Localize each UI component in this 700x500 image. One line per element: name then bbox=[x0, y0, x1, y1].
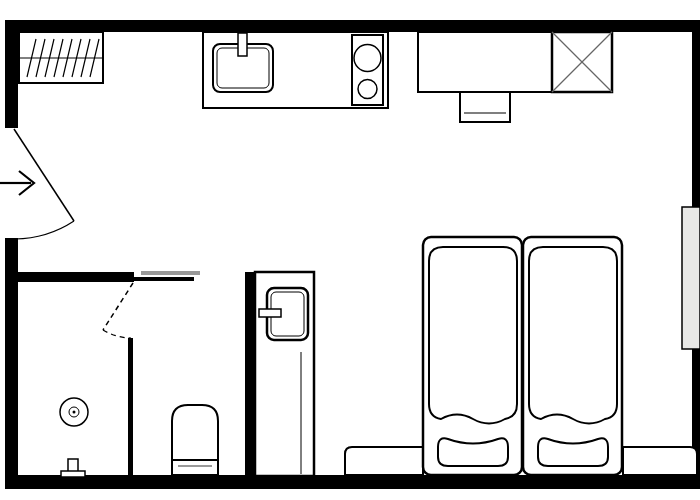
pocket-door-track bbox=[141, 271, 200, 275]
sink-faucet bbox=[238, 33, 247, 56]
desk bbox=[418, 32, 552, 92]
desk-chair bbox=[460, 92, 510, 122]
bench-right-of-beds bbox=[623, 447, 697, 475]
wall-right-upper bbox=[692, 20, 700, 207]
shower-valve-stem bbox=[68, 459, 78, 472]
floor-drain-dot bbox=[73, 411, 76, 414]
shower-valve-base bbox=[61, 471, 85, 477]
wall-bathroom-top bbox=[5, 272, 134, 282]
stove-burner-large bbox=[354, 45, 381, 72]
wall-bathroom-divider bbox=[128, 338, 133, 475]
bench-left-of-beds bbox=[345, 447, 423, 475]
wall-left-upper bbox=[5, 20, 18, 128]
entry-door-swing-arc bbox=[15, 221, 74, 239]
wall-bottom bbox=[5, 475, 700, 489]
window-right bbox=[682, 207, 700, 349]
toilet-body bbox=[172, 405, 218, 475]
wall-top bbox=[6, 20, 700, 32]
floor-plan-page bbox=[0, 0, 700, 500]
bathroom-door-swing-arc-dashed bbox=[103, 330, 131, 338]
boiler-door-handle bbox=[259, 309, 281, 317]
floor-plan-svg bbox=[0, 0, 700, 500]
bed-left-pillow bbox=[438, 438, 508, 466]
bed-right-mattress bbox=[529, 247, 617, 424]
bed-left-mattress bbox=[429, 247, 517, 424]
wall-cabinet-strip bbox=[245, 272, 255, 475]
bathroom-door-leaf-dashed bbox=[103, 283, 133, 330]
wall-bathroom-top-thin bbox=[134, 277, 194, 281]
bed-right-pillow bbox=[538, 438, 608, 466]
stove-burner-small bbox=[358, 80, 377, 99]
